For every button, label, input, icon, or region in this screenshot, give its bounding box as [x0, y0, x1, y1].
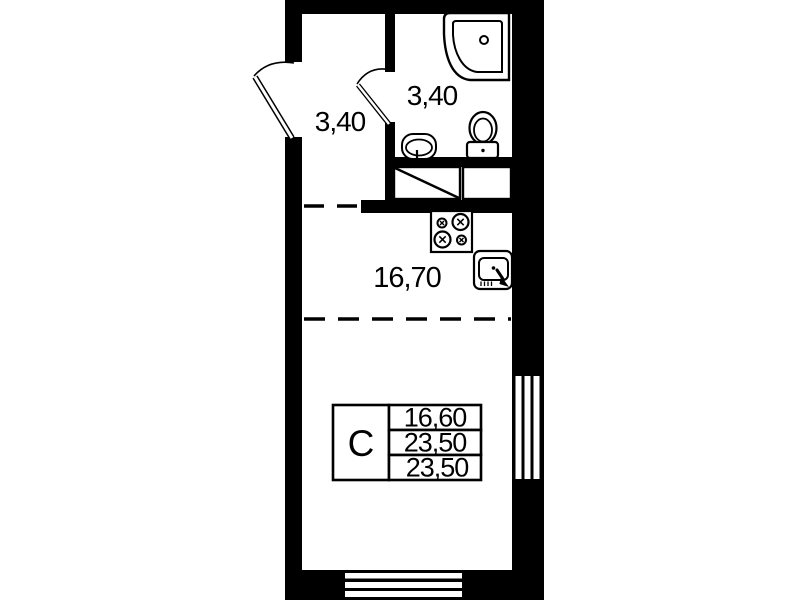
entry-door: [254, 62, 294, 138]
wall-right: [512, 0, 544, 600]
wall-left-upper: [285, 0, 302, 62]
toilet-button: [481, 149, 484, 152]
shower-drain: [480, 36, 488, 44]
closet-box: [463, 167, 511, 199]
window-pane-line: [345, 591, 462, 597]
window-right: [516, 376, 540, 479]
hallway-area-label: 3,40: [315, 106, 366, 137]
wardrobe-box: [394, 167, 460, 199]
partition-hall-bath-upper: [385, 14, 395, 72]
bathroom-area-label: 3,40: [407, 80, 458, 111]
kitchen-sink-unit: [474, 251, 512, 289]
corner-shower: [444, 13, 509, 80]
entry-door-swing-arc: [254, 62, 294, 76]
window-pane-line: [525, 376, 531, 479]
wash-basin: [402, 134, 436, 159]
window-pane-line: [534, 376, 540, 479]
window-pane-line: [516, 376, 522, 479]
stamp-type-letter: С: [348, 423, 375, 464]
wall-left-lower: [285, 137, 302, 600]
floor-plan-page: 3,40 3,40 16,70 С 16,60 23,50 23,50: [0, 0, 799, 600]
stamp-value-3: 23,50: [406, 453, 469, 483]
area-stamp: С 16,60 23,50 23,50: [333, 403, 481, 483]
window-pane-line: [345, 582, 462, 588]
floor-plan-drawing: 3,40 3,40 16,70 С 16,60 23,50 23,50: [0, 0, 799, 600]
sink-drain: [492, 266, 496, 270]
window-pane-line: [345, 573, 462, 579]
window-bottom: [345, 573, 462, 597]
living-area-label: 16,70: [373, 262, 441, 294]
entry-door-leaf-inner: [255, 77, 292, 138]
toilet: [467, 112, 498, 158]
stove: [431, 211, 472, 252]
